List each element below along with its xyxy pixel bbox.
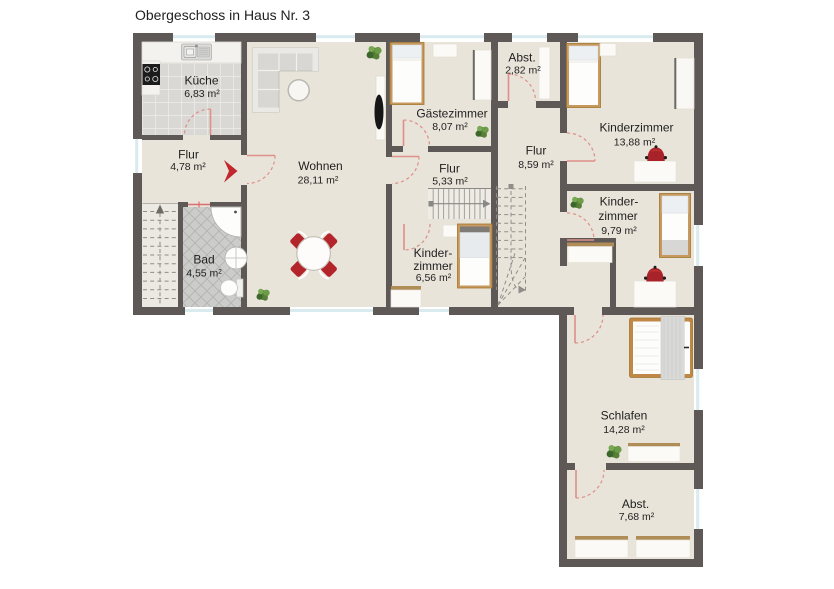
svg-text:Obergeschoss in Haus Nr. 3: Obergeschoss in Haus Nr. 3 (135, 7, 310, 23)
svg-text:28,11 m²: 28,11 m² (298, 175, 339, 187)
svg-text:Flur: Flur (439, 162, 460, 176)
svg-text:8,07 m²: 8,07 m² (432, 121, 468, 133)
svg-text:Abst.: Abst. (508, 51, 535, 65)
svg-text:8,59 m²: 8,59 m² (518, 159, 554, 171)
svg-text:Bad: Bad (193, 253, 214, 267)
svg-text:9,79 m²: 9,79 m² (601, 225, 637, 237)
svg-text:Kinderzimmer: Kinderzimmer (599, 121, 673, 135)
svg-text:4,78 m²: 4,78 m² (170, 161, 206, 173)
svg-text:Flur: Flur (178, 148, 199, 162)
svg-text:Abst.: Abst. (622, 497, 649, 511)
svg-text:14,28 m²: 14,28 m² (603, 424, 645, 436)
svg-text:4,55 m²: 4,55 m² (186, 268, 222, 280)
svg-text:Gästezimmer: Gästezimmer (416, 107, 487, 121)
svg-text:7,68 m²: 7,68 m² (619, 511, 655, 523)
svg-text:6,83 m²: 6,83 m² (184, 88, 220, 100)
svg-text:Küche: Küche (184, 74, 218, 88)
svg-text:Kinder-: Kinder- (600, 195, 639, 209)
svg-text:zimmer: zimmer (598, 209, 637, 223)
svg-text:Wohnen: Wohnen (298, 159, 342, 173)
svg-text:6,56 m²: 6,56 m² (416, 272, 452, 284)
svg-text:Flur: Flur (526, 144, 547, 158)
svg-text:2,82 m²: 2,82 m² (505, 65, 541, 77)
svg-text:Schlafen: Schlafen (601, 409, 648, 423)
svg-text:5,33 m²: 5,33 m² (432, 176, 468, 188)
svg-text:Kinder-: Kinder- (414, 246, 453, 260)
svg-text:zimmer: zimmer (413, 259, 452, 273)
svg-text:13,88 m²: 13,88 m² (614, 137, 656, 149)
